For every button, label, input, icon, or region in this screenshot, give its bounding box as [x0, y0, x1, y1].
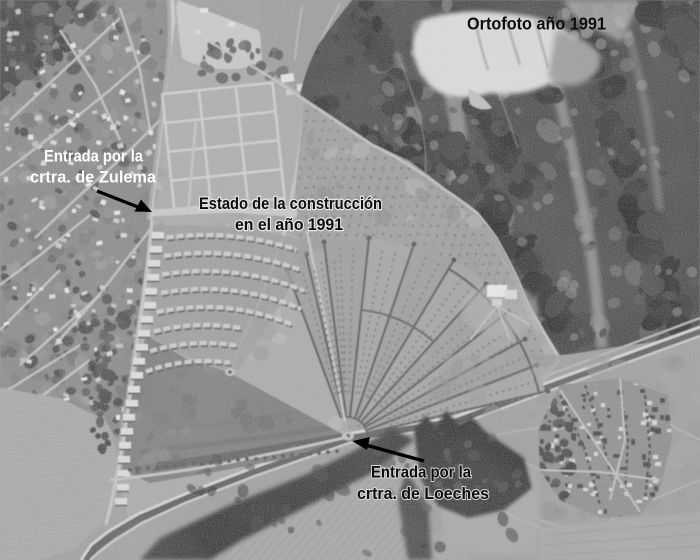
svg-text:Entrada por la: Entrada por la — [44, 148, 144, 166]
svg-text:crtra. de Loeches: crtra. de Loeches — [357, 484, 489, 503]
svg-text:Ortofoto año 1991: Ortofoto año 1991 — [467, 14, 606, 34]
svg-text:en el año 1991: en el año 1991 — [235, 215, 343, 234]
svg-text:Estado de la construcción: Estado de la construcción — [199, 194, 382, 213]
svg-text:crtra. de Zulema: crtra. de Zulema — [30, 169, 157, 187]
svg-text:Entrada por la: Entrada por la — [371, 463, 471, 482]
